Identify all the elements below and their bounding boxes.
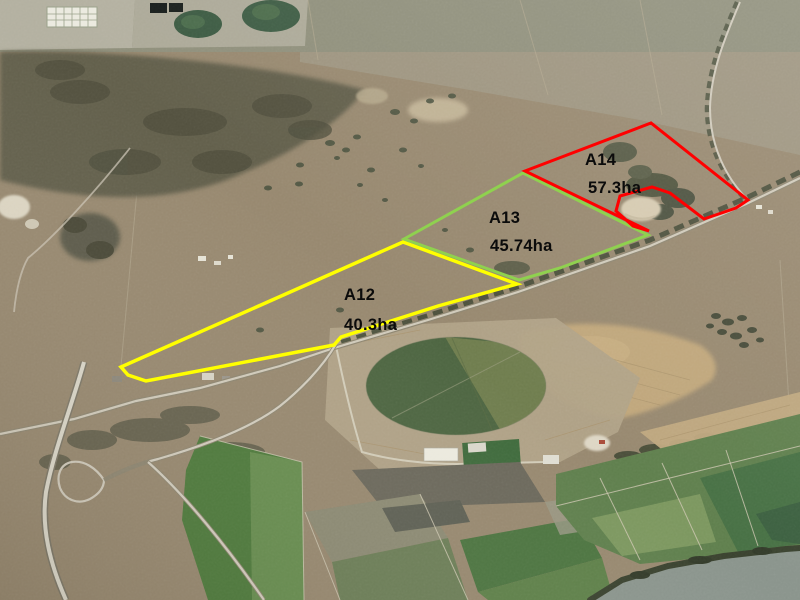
lighting-overlay [0, 0, 800, 600]
parcel-a13-area-label: 45.74ha [490, 237, 553, 255]
parcel-a12-area-label: 40.3ha [344, 316, 398, 334]
parcel-a14-area-label: 57.3ha [588, 179, 642, 197]
parcel-a12-id-label: A12 [344, 286, 375, 304]
aerial-property-map: A12 40.3ha A13 45.74ha A14 57.3ha [0, 0, 800, 600]
parcel-a13-id-label: A13 [489, 209, 520, 227]
parcel-a14-id-label: A14 [585, 151, 617, 169]
